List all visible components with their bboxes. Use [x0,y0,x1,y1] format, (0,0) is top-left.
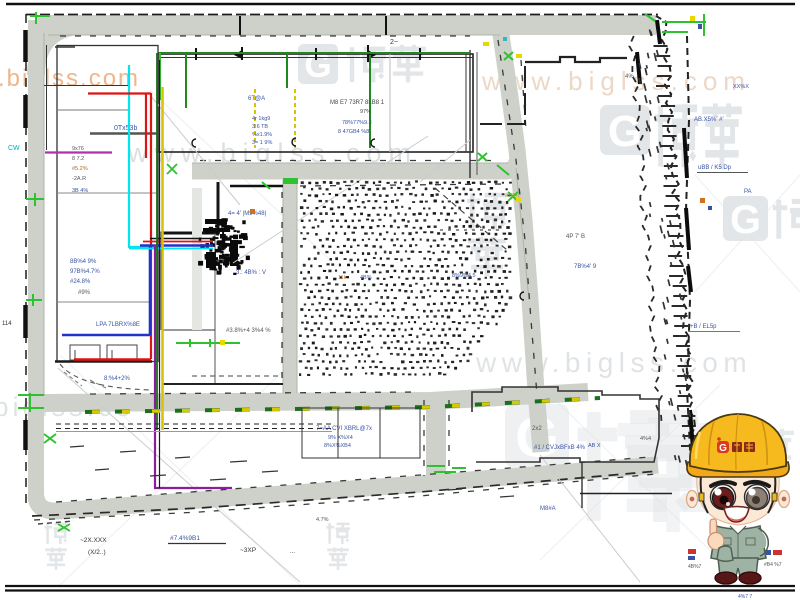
svg-text:4B%7: 4B%7 [688,564,702,570]
svg-text:LPA 7LBRX%8E: LPA 7LBRX%8E [96,322,140,328]
svg-text:www.biglss.com: www.biglss.com [475,347,752,378]
svg-text:-2A.R: -2A.R [72,176,86,182]
svg-text:9x76: 9x76 [72,146,84,152]
svg-text:8 7.2: 8 7.2 [72,156,84,162]
svg-text:4%: 4% [625,74,634,80]
svg-text:#5.2%: #5.2% [72,166,88,172]
svg-text:6T@A: 6T@A [248,96,265,102]
svg-text:4.7%: 4.7% [316,517,329,523]
svg-text:4%7 7: 4%7 7 [738,594,752,600]
svg-text:PA: PA [744,189,752,195]
svg-text:4%4: 4%4 [640,436,651,442]
svg-text:97%: 97% [360,109,371,115]
svg-text:#1 / CVJxBFxB 4%: #1 / CVJxBFxB 4% [534,445,586,451]
svg-text:+B / EL5p: +B / EL5p [690,324,717,330]
svg-text:4= 4' |M9%48|: 4= 4' |M9%48| [228,211,267,217]
svg-text:2~: 2~ [390,39,398,46]
svg-text:#7B4: #7B4 [505,193,518,199]
svg-text:9% X%X4: 9% X%X4 [328,435,353,441]
svg-text:4r 1kg9: 4r 1kg9 [252,116,270,122]
svg-text:%x1.9%: %x1.9% [252,132,272,138]
svg-text:#3.8%+4 3%4 %: #3.8%+4 3%4 % [226,328,271,334]
svg-text:8%X%XB4: 8%X%XB4 [324,443,351,449]
svg-text:CW: CW [8,145,20,152]
svg-text:2x2: 2x2 [532,426,542,432]
svg-text:AB.X5%' #': AB.X5%' #' [694,117,724,123]
svg-text:4B%: 4B% [360,275,372,281]
svg-text:G: G [719,443,727,454]
svg-text:0Tx53b: 0Tx53b [114,125,137,132]
svg-text:(X/2..): (X/2..) [88,549,106,556]
svg-text:3B 4%: 3B 4% [72,188,88,194]
svg-text:8:%4+2%: 8:%4+2% [104,376,131,382]
svg-text:#B4 %7: #B4 %7 [764,562,782,568]
svg-text:78%77%9.3: 78%77%9.3 [342,120,372,126]
svg-text:AB X: AB X [588,443,601,449]
svg-text:M8#A: M8#A [540,506,556,512]
svg-text:7=AA CVI XBRL@7x: 7=AA CVI XBRL@7x [316,426,372,432]
svg-text:3= 1 9%: 3= 1 9% [252,140,272,146]
svg-text:3.: 4B% : V: 3.: 4B% : V [236,270,266,276]
svg-text:7B%4' 9: 7B%4' 9 [574,264,597,270]
svg-text:8 47GB4 %8: 8 47GB4 %8 [338,129,369,135]
svg-text:4P 7' B: 4P 7' B [566,234,585,240]
svg-text:114: 114 [2,321,12,327]
svg-text:8%9%4 5: 8%9%4 5 [452,273,476,279]
svg-text:...: ... [290,549,295,555]
svg-text:www.biglss.com: www.biglss.com [481,66,751,96]
svg-text:97B%4.7%: 97B%4.7% [70,269,100,275]
svg-text:11k..: 11k.. [338,275,350,281]
svg-text:XX%X: XX%X [733,84,749,90]
svg-text:w.biglss.com: w.biglss.com [0,65,140,92]
svg-text:~3XP: ~3XP [240,547,256,554]
svg-text:8B%4 9%: 8B%4 9% [70,259,97,265]
svg-text:#24.8%: #24.8% [70,279,91,285]
svg-text:#9%: #9% [78,290,91,296]
svg-text:M8 E7 73R7 8LB8 1: M8 E7 73R7 8LB8 1 [330,100,385,106]
svg-text:3 6 TB: 3 6 TB [252,124,268,130]
svg-text:#7.4%9B1: #7.4%9B1 [170,535,200,542]
svg-text:uBB / K5 Dp: uBB / K5 Dp [698,165,732,171]
svg-text:~2X.XXX: ~2X.XXX [80,537,107,544]
